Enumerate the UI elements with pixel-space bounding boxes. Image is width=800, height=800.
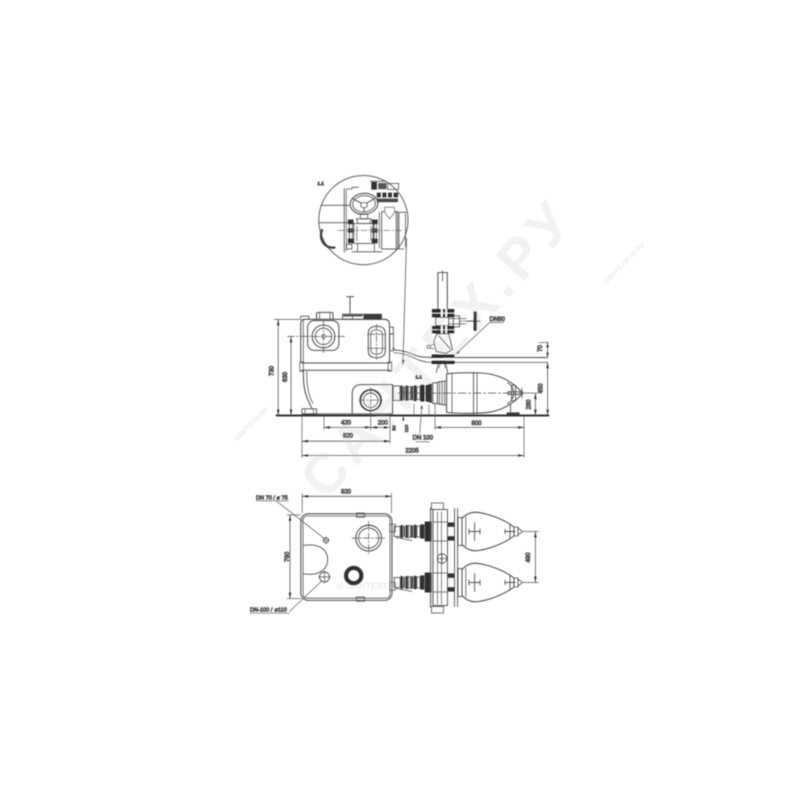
svg-text:70: 70 [538, 345, 544, 352]
svg-text:730: 730 [270, 365, 276, 376]
svg-text:1.1: 1.1 [416, 375, 423, 380]
svg-text:800: 800 [471, 421, 482, 427]
svg-text:ø110: ø110 [275, 608, 287, 614]
svg-text:1.1: 1.1 [318, 181, 325, 186]
svg-text:DN80: DN80 [490, 317, 506, 323]
svg-text:920: 920 [341, 490, 352, 496]
svg-text:280: 280 [526, 399, 532, 410]
svg-text:780: 780 [285, 551, 291, 562]
svg-text:110: 110 [404, 424, 410, 432]
svg-text:450: 450 [538, 383, 544, 394]
svg-text:630: 630 [283, 371, 289, 382]
svg-text:420: 420 [341, 420, 352, 426]
svg-text:САНТЕХКОМ: САНТЕХКОМ [234, 407, 270, 443]
svg-text:2205: 2205 [405, 449, 419, 455]
svg-text:DN 70 /: DN 70 / [256, 495, 275, 501]
svg-text:DN 100: DN 100 [413, 435, 434, 441]
svg-text:DN-100 /: DN-100 / [250, 608, 273, 614]
svg-text:490: 490 [526, 552, 532, 563]
svg-text:ø 75: ø 75 [277, 495, 288, 501]
svg-text:50: 50 [391, 425, 397, 431]
svg-text:200: 200 [378, 420, 389, 426]
svg-text:820: 820 [343, 433, 354, 439]
svg-text:САНТЕХКОМ.РУ: САНТЕХКОМ.РУ [603, 241, 647, 285]
